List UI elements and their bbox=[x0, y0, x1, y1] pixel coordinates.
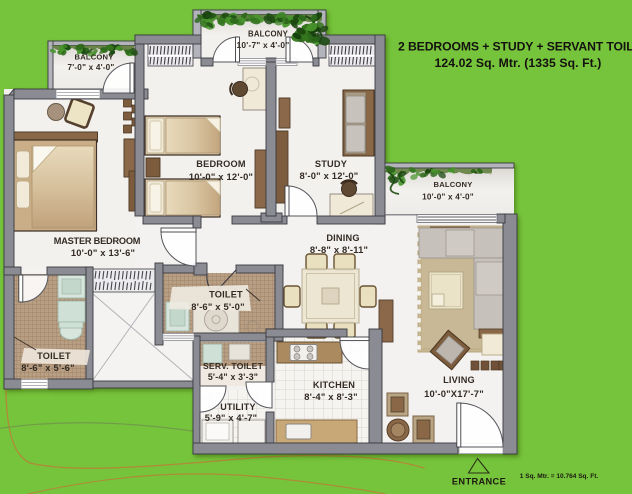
svg-text:LIVING: LIVING bbox=[443, 375, 475, 385]
svg-text:10'-0" x 13'-6": 10'-0" x 13'-6" bbox=[71, 247, 135, 258]
svg-text:TOILET: TOILET bbox=[209, 290, 243, 300]
svg-text:KITCHEN: KITCHEN bbox=[313, 380, 355, 390]
svg-text:5'-9" x 4'-7": 5'-9" x 4'-7" bbox=[205, 413, 257, 423]
svg-text:BALCONY: BALCONY bbox=[248, 30, 289, 39]
svg-text:10'-7" x 4'-0": 10'-7" x 4'-0" bbox=[237, 40, 290, 50]
svg-text:8'-6" x 5'-0": 8'-6" x 5'-0" bbox=[191, 301, 244, 312]
svg-text:2 BEDROOMS + STUDY + SERVANT T: 2 BEDROOMS + STUDY + SERVANT TOILET bbox=[398, 40, 632, 54]
svg-text:7'-0" x 4'-0": 7'-0" x 4'-0" bbox=[67, 63, 114, 72]
svg-text:ENTRANCE: ENTRANCE bbox=[452, 476, 506, 486]
svg-text:MASTER BEDROOM: MASTER BEDROOM bbox=[54, 236, 141, 246]
svg-text:BALCONY: BALCONY bbox=[75, 53, 114, 62]
svg-text:8'-4" x 8'-3": 8'-4" x 8'-3" bbox=[304, 391, 357, 402]
svg-text:8'-6" x 5'-6": 8'-6" x 5'-6" bbox=[21, 362, 74, 373]
svg-text:TOILET: TOILET bbox=[37, 351, 71, 361]
svg-text:5'-4" x 3'-3": 5'-4" x 3'-3" bbox=[208, 372, 258, 382]
svg-text:SERV. TOILET: SERV. TOILET bbox=[203, 361, 264, 371]
svg-text:10'-0" x 4'-0": 10'-0" x 4'-0" bbox=[422, 193, 474, 202]
svg-text:BEDROOM: BEDROOM bbox=[196, 159, 246, 169]
svg-text:10'-0" x 12'-0": 10'-0" x 12'-0" bbox=[189, 171, 253, 182]
svg-text:UTILITY: UTILITY bbox=[220, 402, 255, 412]
svg-text:124.02 Sq. Mtr. (1335 Sq. Ft.): 124.02 Sq. Mtr. (1335 Sq. Ft.) bbox=[435, 56, 602, 70]
svg-text:DINING: DINING bbox=[326, 233, 359, 243]
svg-text:8'-0" x 12'-0": 8'-0" x 12'-0" bbox=[300, 170, 359, 181]
svg-text:1 Sq. Mtr. = 10.764 Sq. Ft.: 1 Sq. Mtr. = 10.764 Sq. Ft. bbox=[520, 473, 599, 480]
svg-text:10'-0"X17'-7": 10'-0"X17'-7" bbox=[424, 388, 484, 399]
svg-text:STUDY: STUDY bbox=[315, 159, 347, 169]
svg-text:BALCONY: BALCONY bbox=[434, 180, 473, 189]
svg-text:8'-8" x 8'-11": 8'-8" x 8'-11" bbox=[310, 244, 368, 255]
